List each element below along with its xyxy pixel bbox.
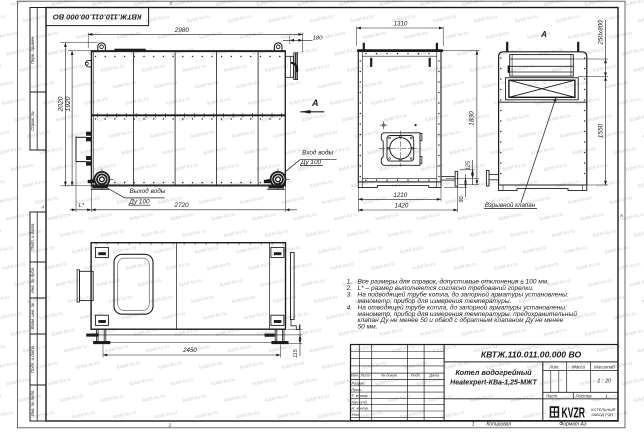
svg-text:180: 180 <box>313 36 323 42</box>
svg-text:125: 125 <box>466 160 472 170</box>
svg-text:Выход воды: Выход воды <box>130 187 166 195</box>
svg-text:1830: 1830 <box>469 111 476 126</box>
svg-text:Ду 100: Ду 100 <box>128 198 150 205</box>
svg-text:1920: 1920 <box>65 96 72 111</box>
svg-text:1: 1 <box>472 421 475 427</box>
svg-text:Утв.: Утв. <box>352 412 361 417</box>
svg-text:Инв. № дубл.: Инв. № дубл. <box>30 267 35 293</box>
svg-text:Инв. № подл.: Инв. № подл. <box>30 390 35 417</box>
svg-text:Изм.: Изм. <box>351 374 359 378</box>
svg-text:1550: 1550 <box>597 123 604 138</box>
svg-text:Н. контр.: Н. контр. <box>352 406 370 411</box>
svg-text:Взрывной клапан: Взрывной клапан <box>485 202 536 209</box>
svg-text:2720: 2720 <box>173 202 189 209</box>
svg-text:Листов: Листов <box>575 393 593 398</box>
svg-text:Копировал: Копировал <box>486 421 511 427</box>
svg-text:Подп.: Подп. <box>411 374 421 378</box>
svg-text:КВТЖ.110.011.00.000 ВО: КВТЖ.110.011.00.000 ВО <box>53 12 142 21</box>
svg-text:1: 1 <box>605 393 608 398</box>
svg-text:Разраб.: Разраб. <box>352 381 366 386</box>
svg-text:Нач.отд.: Нач.отд. <box>352 399 368 404</box>
svg-text:Перв. примен.: Перв. примен. <box>30 35 35 64</box>
svg-text:L*: L* <box>79 203 85 209</box>
svg-text:250х800: 250х800 <box>597 20 604 46</box>
svg-text:Лист: Лист <box>545 393 558 398</box>
svg-text:А: А <box>540 30 547 39</box>
svg-text:Масса: Масса <box>572 365 586 370</box>
svg-text:Подп. и дата: Подп. и дата <box>30 223 35 251</box>
svg-text:1210: 1210 <box>393 192 407 199</box>
svg-text:2980: 2980 <box>174 27 190 34</box>
svg-text:Формат А3: Формат А3 <box>559 421 587 427</box>
svg-text:115: 115 <box>293 348 299 358</box>
svg-text:Ду 100: Ду 100 <box>300 159 322 166</box>
svg-text:Лит.: Лит. <box>548 365 559 370</box>
svg-text:Дата: Дата <box>428 374 439 378</box>
svg-text:ЗАВОД РЭП: ЗАВОД РЭП <box>591 413 613 417</box>
svg-text:КВТЖ.110.011.00.000 ВО: КВТЖ.110.011.00.000 ВО <box>481 349 582 359</box>
svg-text:Котел водогрейный: Котел водогрейный <box>455 368 532 377</box>
svg-text:4.: 4. <box>347 304 352 311</box>
svg-text:А: А <box>40 205 44 210</box>
svg-text:КОТЕЛЬНЫЙ: КОТЕЛЬНЫЙ <box>591 408 615 412</box>
svg-text:№ докум.: № докум. <box>381 374 398 378</box>
svg-text:Масштаб: Масштаб <box>594 365 615 370</box>
svg-text:Взам. инв. №: Взам. инв. № <box>30 302 35 329</box>
svg-text:Справ. №: Справ. № <box>30 111 35 131</box>
svg-text:2020: 2020 <box>58 96 65 112</box>
svg-text:1310: 1310 <box>394 21 408 28</box>
svg-text:А: А <box>619 213 623 218</box>
svg-text:50 мм.: 50 мм. <box>358 324 378 331</box>
svg-text:1420: 1420 <box>395 203 409 210</box>
svg-text:Heatexpert-КВа-1,25-МЖТ: Heatexpert-КВа-1,25-МЖТ <box>450 380 537 387</box>
svg-text:1 : 20: 1 : 20 <box>597 379 612 385</box>
svg-text:Лист: Лист <box>360 374 371 378</box>
svg-text:Пров.: Пров. <box>352 387 362 392</box>
svg-text:2: 2 <box>168 423 172 428</box>
svg-text:KVZR: KVZR <box>562 405 586 421</box>
svg-text:клапан Ду не менее 50 и обвод: клапан Ду не менее 50 и обвод с обратным… <box>358 316 564 324</box>
svg-text:90: 90 <box>459 196 465 203</box>
svg-text:3.: 3. <box>347 291 352 298</box>
svg-text:Вход воды: Вход воды <box>302 148 333 156</box>
svg-text:2: 2 <box>169 1 173 6</box>
svg-text:Подп. и дата: Подп. и дата <box>30 345 35 373</box>
svg-text:2450: 2450 <box>182 347 197 354</box>
svg-text:Т. контр.: Т. контр. <box>352 393 369 398</box>
svg-text:А: А <box>311 98 319 108</box>
